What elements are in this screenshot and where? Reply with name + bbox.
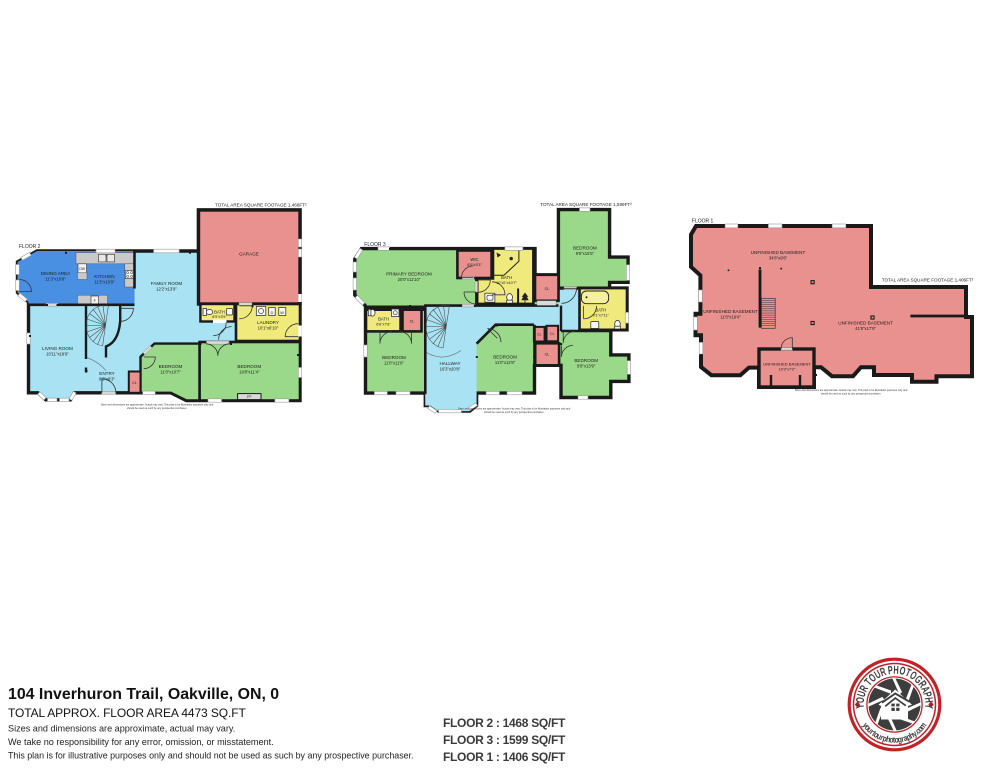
svg-text:FLOOR 2: FLOOR 2 (19, 244, 41, 250)
svg-text:11'0"x10'7": 11'0"x10'7" (160, 370, 181, 375)
svg-text:UNFINISHED BASEMENT: UNFINISHED BASEMENT (838, 321, 893, 326)
svg-text:FLOOR 1 : 1406 SQ/FT: FLOOR 1 : 1406 SQ/FT (443, 750, 566, 764)
svg-text:11'0"x11'6": 11'0"x11'6" (384, 361, 405, 366)
svg-text:KITCHEN: KITCHEN (94, 274, 114, 279)
svg-text:DINING AREA: DINING AREA (41, 271, 72, 276)
svg-text:This plan is for illustrative: This plan is for illustrative purposes o… (8, 751, 414, 761)
svg-text:104 Inverhuron Trail, Oakville: 104 Inverhuron Trail, Oakville, ON, 0 (8, 686, 279, 703)
svg-text:FLOOR 2 : 1468 SQ/FT: FLOOR 2 : 1468 SQ/FT (443, 716, 566, 730)
svg-text:10'10"x10'7": 10'10"x10'7" (496, 281, 517, 285)
svg-text:WIC: WIC (470, 257, 478, 262)
svg-text:11'0"x19'4": 11'0"x19'4" (720, 315, 741, 320)
svg-text:DW: DW (79, 267, 85, 271)
svg-text:11'3"x10'9": 11'3"x10'9" (45, 277, 66, 282)
svg-text:CL: CL (410, 320, 415, 324)
svg-text:BATH: BATH (595, 308, 606, 313)
svg-text:PRIMARY BEDROOM: PRIMARY BEDROOM (386, 272, 432, 277)
svg-text:20'0"x11'10": 20'0"x11'10" (398, 277, 421, 282)
svg-text:11'5"x10'9": 11'5"x10'9" (94, 280, 115, 285)
svg-text:10'1"x6'10": 10'1"x6'10" (258, 326, 279, 331)
svg-text:BATH: BATH (214, 310, 225, 315)
svg-text:34'8"x9'8": 34'8"x9'8" (769, 256, 788, 261)
svg-text:W: W (280, 310, 284, 315)
svg-text:TOTAL AREA SQUARE FOOTAGE 1,59: TOTAL AREA SQUARE FOOTAGE 1,599FT² (540, 202, 632, 207)
svg-text:9'8"x15'5": 9'8"x15'5" (576, 251, 595, 256)
svg-text:BEDROOM: BEDROOM (382, 355, 406, 360)
svg-text:HALLWAY: HALLWAY (439, 361, 460, 366)
svg-text:41'8"x17'9": 41'8"x17'9" (855, 326, 876, 331)
svg-text:BEDROOM: BEDROOM (493, 355, 517, 360)
svg-text:BEDROOM: BEDROOM (574, 358, 598, 363)
svg-text:10'11"x18'9": 10'11"x18'9" (46, 352, 69, 357)
svg-text:should be used as such by any: should be used as such by any perspectiv… (821, 393, 881, 396)
svg-text:CL: CL (537, 333, 541, 337)
svg-text:FLOOR 3 : 1599 SQ/FT: FLOOR 3 : 1599 SQ/FT (443, 733, 566, 747)
svg-text:LAUNDRY: LAUNDRY (257, 320, 279, 325)
svg-text:UNFINISHED BASEMENT: UNFINISHED BASEMENT (763, 362, 811, 367)
svg-text:FLOOR 3: FLOOR 3 (364, 242, 386, 248)
svg-text:8'9"x3'9": 8'9"x3'9" (212, 315, 227, 319)
svg-text:8'3"x8'3": 8'3"x8'3" (99, 377, 115, 382)
svg-text:GARAGE: GARAGE (239, 252, 259, 257)
svg-text:BEDROOM: BEDROOM (159, 364, 183, 369)
svg-text:FLOOR 1: FLOOR 1 (692, 219, 714, 225)
svg-text:6'0"x5'3": 6'0"x5'3" (467, 263, 482, 267)
svg-text:D: D (270, 310, 273, 315)
svg-text:FAMILY ROOM: FAMILY ROOM (151, 281, 183, 286)
svg-text:9'8"x13'9": 9'8"x13'9" (577, 364, 596, 369)
svg-text:TOTAL APPROX. FLOOR AREA 4473: TOTAL APPROX. FLOOR AREA 4473 SQ.FT (8, 706, 246, 720)
svg-text:LIVING ROOM: LIVING ROOM (42, 346, 73, 351)
svg-text:UNFINISHED BASEMENT: UNFINISHED BASEMENT (703, 309, 758, 314)
svg-text:6'8"x7'8": 6'8"x7'8" (376, 323, 391, 327)
svg-text:ENTRY: ENTRY (99, 371, 115, 376)
svg-text:CL: CL (550, 332, 554, 336)
svg-text:We take no responsibility for: We take no responsibility for any error,… (8, 737, 274, 747)
svg-text:CL: CL (132, 381, 137, 385)
svg-text:FP: FP (247, 395, 252, 399)
svg-text:TOTAL AREA SQUARE FOOTAGE 1,40: TOTAL AREA SQUARE FOOTAGE 1,406FT² (882, 277, 974, 282)
svg-text:should be used as such by any: should be used as such by any perspectiv… (127, 407, 187, 410)
svg-text:TOTAL AREA SQUARE FOOTAGE 1,46: TOTAL AREA SQUARE FOOTAGE 1,468FT² (215, 203, 307, 208)
svg-text:16'3"x20'8": 16'3"x20'8" (440, 367, 461, 372)
svg-text:CL: CL (545, 353, 550, 357)
svg-text:BATH: BATH (501, 275, 512, 280)
svg-text:Sizes and dimensions are appro: Sizes and dimensions are approximate, ac… (8, 724, 235, 734)
svg-text:19'8"x11'4": 19'8"x11'4" (239, 370, 260, 375)
svg-text:10'3"x7'2": 10'3"x7'2" (779, 368, 796, 372)
svg-text:should be used as such by any: should be used as such by any perspectiv… (484, 411, 544, 414)
svg-text:UNFINISHED BASEMENT: UNFINISHED BASEMENT (751, 250, 806, 255)
svg-text:BATH: BATH (378, 317, 389, 322)
svg-text:11'0"x12'8": 11'0"x12'8" (495, 360, 516, 365)
svg-text:12'2"x13'9": 12'2"x13'9" (156, 287, 177, 292)
svg-text:BEDROOM: BEDROOM (573, 246, 597, 251)
svg-text:CL: CL (545, 287, 550, 291)
svg-text:9'1"x7'11": 9'1"x7'11" (593, 314, 610, 318)
svg-text:BEDROOM: BEDROOM (237, 364, 261, 369)
